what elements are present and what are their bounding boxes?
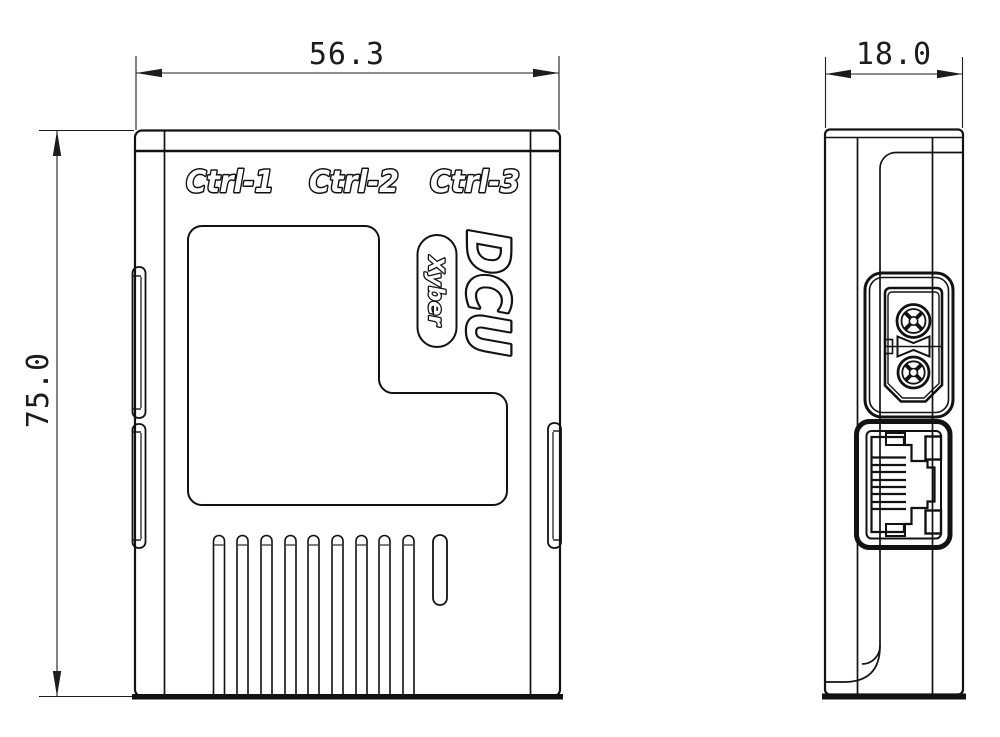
power-connector-housing (865, 273, 953, 417)
ctrl-3-label: Ctrl-3 (430, 165, 520, 200)
arrowhead-bottom (53, 671, 61, 697)
vent-slot (285, 536, 296, 695)
front-view: 56.3 75.0 (21, 37, 563, 700)
vent-slot (237, 536, 248, 695)
vent-slot (308, 536, 319, 695)
terminal-hub (910, 369, 918, 377)
dimension-front-height: 75.0 (21, 131, 134, 697)
ethernet-tab-bottom (886, 524, 905, 536)
side-bottom-edge (822, 694, 966, 700)
vent-slot (356, 536, 367, 695)
arrowhead-left (136, 69, 162, 77)
front-bottom-edge (132, 694, 563, 700)
power-terminal-negative (898, 357, 929, 388)
ethernet-faceplate (867, 431, 942, 539)
dimension-side-depth: 18.0 (826, 37, 963, 128)
power-plug-body-inner (888, 292, 939, 398)
dimension-front-width: 56.3 (136, 37, 559, 130)
xyber-badge: Xyber (418, 235, 457, 347)
status-led-slot (433, 535, 447, 605)
arrowhead-right (937, 70, 963, 78)
vent-slot (261, 536, 272, 695)
power-terminal-positive (897, 305, 930, 338)
xyber-brand-label: Xyber (424, 254, 448, 327)
vent-slots (214, 536, 415, 695)
arrowhead-left (826, 70, 852, 78)
vent-slot (214, 536, 225, 695)
dcu-logo: DCU (454, 230, 522, 356)
dimension-width-value: 56.3 (309, 37, 385, 72)
terminal-hub (909, 317, 917, 325)
dimension-depth-value: 18.0 (856, 37, 932, 72)
drawing-canvas: 56.3 75.0 (0, 0, 1000, 737)
port-labels: Ctrl-1 Ctrl-2 Ctrl-3 (186, 165, 520, 200)
dimension-height-value: 75.0 (21, 352, 56, 428)
side-face-contour-top (862, 153, 963, 665)
front-body-outline (135, 131, 560, 697)
side-view: 18.0 (822, 37, 966, 700)
side-face-contour-bottom (825, 646, 880, 682)
ethernet-pins (872, 458, 906, 510)
technical-drawing: 56.3 75.0 (0, 0, 1000, 737)
vent-slot (332, 536, 343, 695)
vent-slot (403, 536, 414, 695)
arrowhead-right (533, 69, 559, 77)
ethernet-port (857, 422, 951, 548)
power-connector (865, 273, 953, 417)
arrowhead-top (53, 131, 61, 157)
ctrl-2-label: Ctrl-2 (309, 165, 399, 200)
ethernet-tab-top (886, 433, 905, 445)
ctrl-1-label: Ctrl-1 (186, 165, 274, 200)
vent-slot (379, 536, 390, 695)
power-connector-housing-inner (870, 278, 949, 413)
